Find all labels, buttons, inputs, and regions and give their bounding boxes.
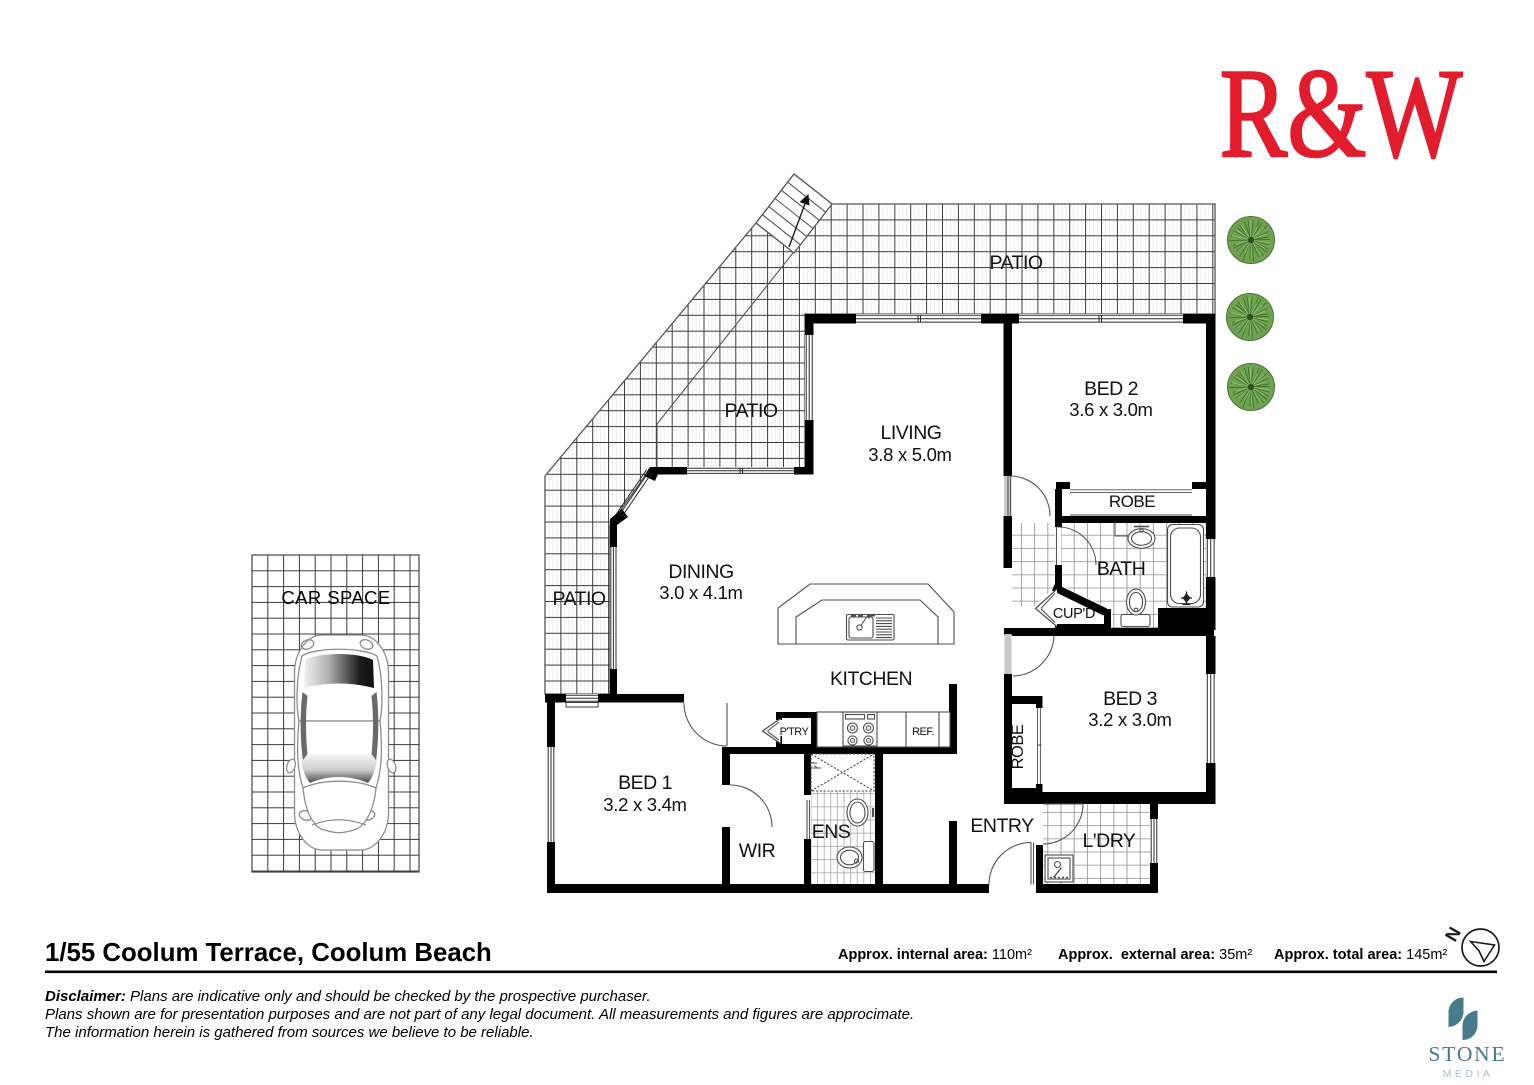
svg-text:R&W: R&W (1220, 43, 1463, 183)
svg-text:BED 3: BED 3 (1103, 688, 1157, 710)
svg-text:PATIO: PATIO (989, 252, 1042, 274)
svg-text:Approx. external area: 35m²: Approx. external area: 35m² (1058, 947, 1252, 963)
svg-text:3.8 x 5.0m: 3.8 x 5.0m (868, 444, 951, 465)
svg-text:Approx. total area: 145m²: Approx. total area: 145m² (1274, 947, 1447, 963)
svg-text:P'TRY: P'TRY (780, 726, 810, 738)
svg-text:DINING: DINING (668, 561, 733, 583)
svg-text:Disclaimer: Plans are indicati: Disclaimer: Plans are indicative only an… (45, 988, 651, 1005)
svg-text:ENTRY: ENTRY (970, 815, 1034, 837)
svg-text:ROBE: ROBE (1009, 724, 1027, 769)
svg-text:3.6 x 3.0m: 3.6 x 3.0m (1069, 399, 1152, 420)
svg-text:Approx. internal area: 110m²: Approx. internal area: 110m² (838, 947, 1032, 963)
svg-text:CUP'D: CUP'D (1053, 606, 1095, 622)
svg-text:L'DRY: L'DRY (1083, 830, 1136, 852)
svg-text:Plans shown are for presentati: Plans shown are for presentation purpose… (45, 1006, 914, 1023)
svg-text:3.0 x 4.1m: 3.0 x 4.1m (659, 582, 742, 603)
svg-text:STONE: STONE (1429, 1042, 1507, 1066)
svg-text:BED 1: BED 1 (618, 772, 672, 794)
svg-text:ENS: ENS (812, 821, 851, 843)
svg-text:LIVING: LIVING (881, 422, 942, 444)
svg-text:3.2 x 3.4m: 3.2 x 3.4m (603, 794, 686, 815)
svg-text:KITCHEN: KITCHEN (830, 668, 912, 690)
svg-text:1/55 Coolum Terrace, Coolum Be: 1/55 Coolum Terrace, Coolum Beach (45, 939, 492, 967)
svg-text:3.2 x 3.0m: 3.2 x 3.0m (1088, 709, 1171, 730)
svg-text:WIR: WIR (739, 840, 776, 862)
svg-text:The information herein is gath: The information herein is gathered from … (45, 1024, 534, 1041)
svg-text:PATIO: PATIO (724, 400, 777, 422)
svg-text:ROBE: ROBE (1109, 492, 1155, 511)
svg-text:PATIO: PATIO (552, 588, 605, 610)
svg-text:REF.: REF. (912, 726, 934, 738)
svg-text:BED 2: BED 2 (1084, 378, 1138, 400)
svg-text:CAR SPACE: CAR SPACE (281, 587, 390, 608)
svg-text:BATH: BATH (1097, 558, 1146, 580)
svg-text:MEDIA: MEDIA (1443, 1068, 1494, 1080)
